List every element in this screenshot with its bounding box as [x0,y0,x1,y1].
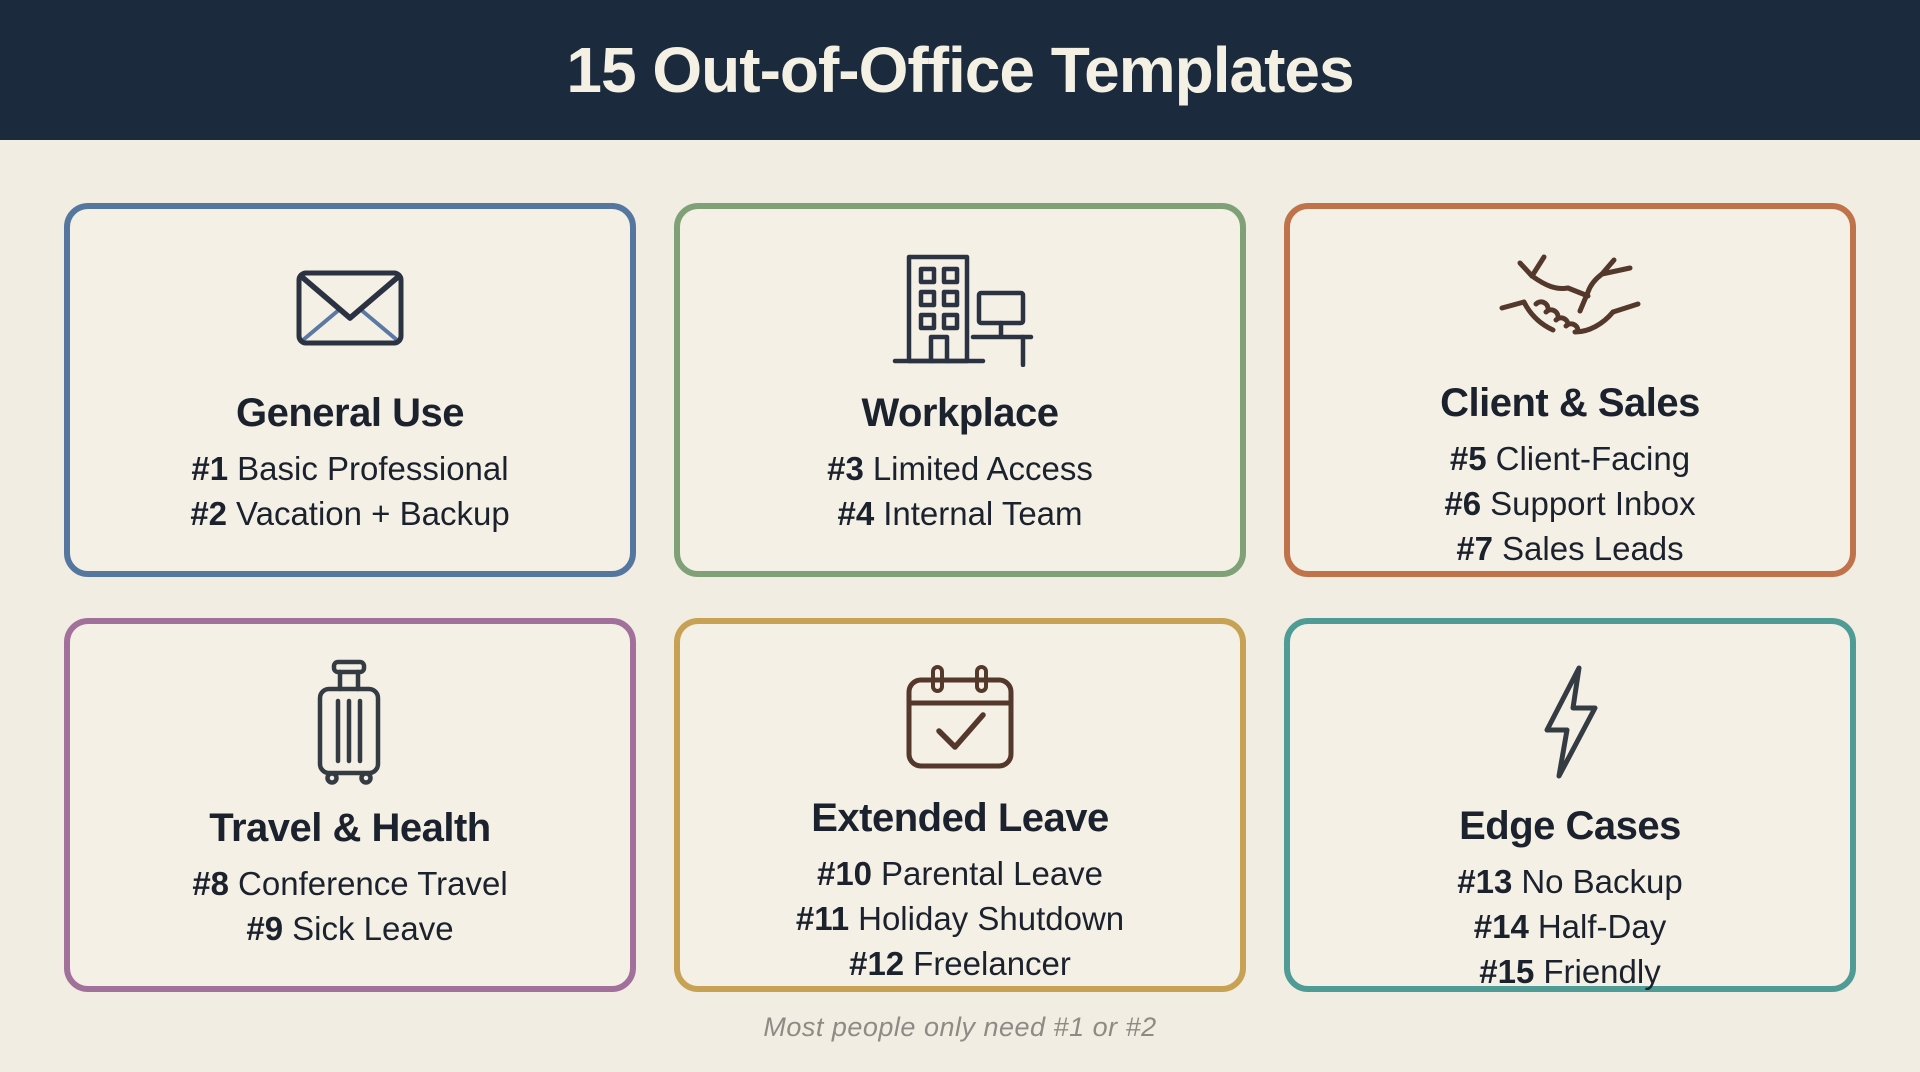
item-label: Internal Team [883,495,1082,532]
item-number: #8 [192,865,229,902]
card-title: Workplace [861,391,1058,436]
template-item: #6Support Inbox [1444,481,1695,526]
template-item: #13No Backup [1457,859,1683,904]
header-banner: 15 Out-of-Office Templates [0,0,1920,140]
item-number: #9 [246,910,283,947]
item-label: Freelancer [913,945,1071,982]
item-label: Limited Access [873,450,1093,487]
item-number: #15 [1479,953,1534,990]
envelope-icon [296,249,404,367]
card-travel-health: Travel & Health #8Conference Travel #9Si… [64,618,636,992]
card-items: #5Client-Facing #6Support Inbox #7Sales … [1444,436,1695,571]
item-number: #1 [191,450,228,487]
template-item: #4Internal Team [827,491,1093,536]
suitcase-icon [304,664,396,782]
cards-grid: General Use #1Basic Professional #2Vacat… [0,140,1920,992]
card-title: General Use [236,391,464,436]
card-client-sales: Client & Sales #5Client-Facing #6Support… [1284,203,1856,577]
item-label: Support Inbox [1490,485,1695,522]
item-number: #4 [837,495,874,532]
template-item: #7Sales Leads [1444,526,1695,571]
item-label: Sick Leave [292,910,453,947]
card-title: Travel & Health [209,806,491,851]
item-label: Basic Professional [237,450,508,487]
card-title: Edge Cases [1459,804,1681,849]
item-label: Conference Travel [238,865,508,902]
footer-note: Most people only need #1 or #2 [0,1012,1920,1043]
card-edge-cases: Edge Cases #13No Backup #14Half-Day #15F… [1284,618,1856,992]
card-general-use: General Use #1Basic Professional #2Vacat… [64,203,636,577]
template-item: #5Client-Facing [1444,436,1695,481]
office-building-icon [885,249,1035,367]
item-label: No Backup [1521,863,1682,900]
item-number: #5 [1450,440,1487,477]
envelope-diagonal-left [303,309,340,340]
item-number: #12 [849,945,904,982]
template-item: #9Sick Leave [192,906,507,951]
item-number: #3 [827,450,864,487]
template-item: #10Parental Leave [796,851,1124,896]
item-label: Holiday Shutdown [858,900,1124,937]
item-number: #7 [1456,530,1493,567]
template-item: #11Holiday Shutdown [796,896,1124,941]
template-item: #12Freelancer [796,941,1124,986]
card-extended-leave: Extended Leave #10Parental Leave #11Holi… [674,618,1246,992]
page-title: 15 Out-of-Office Templates [566,33,1353,107]
item-label: Half-Day [1538,908,1666,945]
item-number: #13 [1457,863,1512,900]
item-label: Client-Facing [1496,440,1690,477]
handshake-icon [1496,249,1644,357]
item-label: Friendly [1543,953,1660,990]
item-label: Parental Leave [881,855,1103,892]
item-number: #6 [1444,485,1481,522]
card-workplace: Workplace #3Limited Access #4Internal Te… [674,203,1246,577]
item-label: Vacation + Backup [236,495,510,532]
item-number: #10 [817,855,872,892]
item-number: #11 [796,900,849,937]
card-items: #1Basic Professional #2Vacation + Backup [190,446,509,536]
card-items: #8Conference Travel #9Sick Leave [192,861,507,951]
template-item: #15Friendly [1457,949,1683,994]
template-item: #14Half-Day [1457,904,1683,949]
card-items: #13No Backup #14Half-Day #15Friendly [1457,859,1683,994]
item-label: Sales Leads [1502,530,1684,567]
card-title: Client & Sales [1440,381,1700,426]
card-items: #10Parental Leave #11Holiday Shutdown #1… [796,851,1124,986]
template-item: #8Conference Travel [192,861,507,906]
item-number: #2 [190,495,227,532]
calendar-check-icon [901,664,1019,772]
card-items: #3Limited Access #4Internal Team [827,446,1093,536]
template-item: #3Limited Access [827,446,1093,491]
lightning-bolt-icon [1531,664,1609,780]
card-title: Extended Leave [811,796,1109,841]
item-number: #14 [1474,908,1529,945]
infographic-page: 15 Out-of-Office Templates General Use #… [0,0,1920,1072]
template-item: #2Vacation + Backup [190,491,509,536]
envelope-diagonal-right [360,309,397,340]
template-item: #1Basic Professional [190,446,509,491]
